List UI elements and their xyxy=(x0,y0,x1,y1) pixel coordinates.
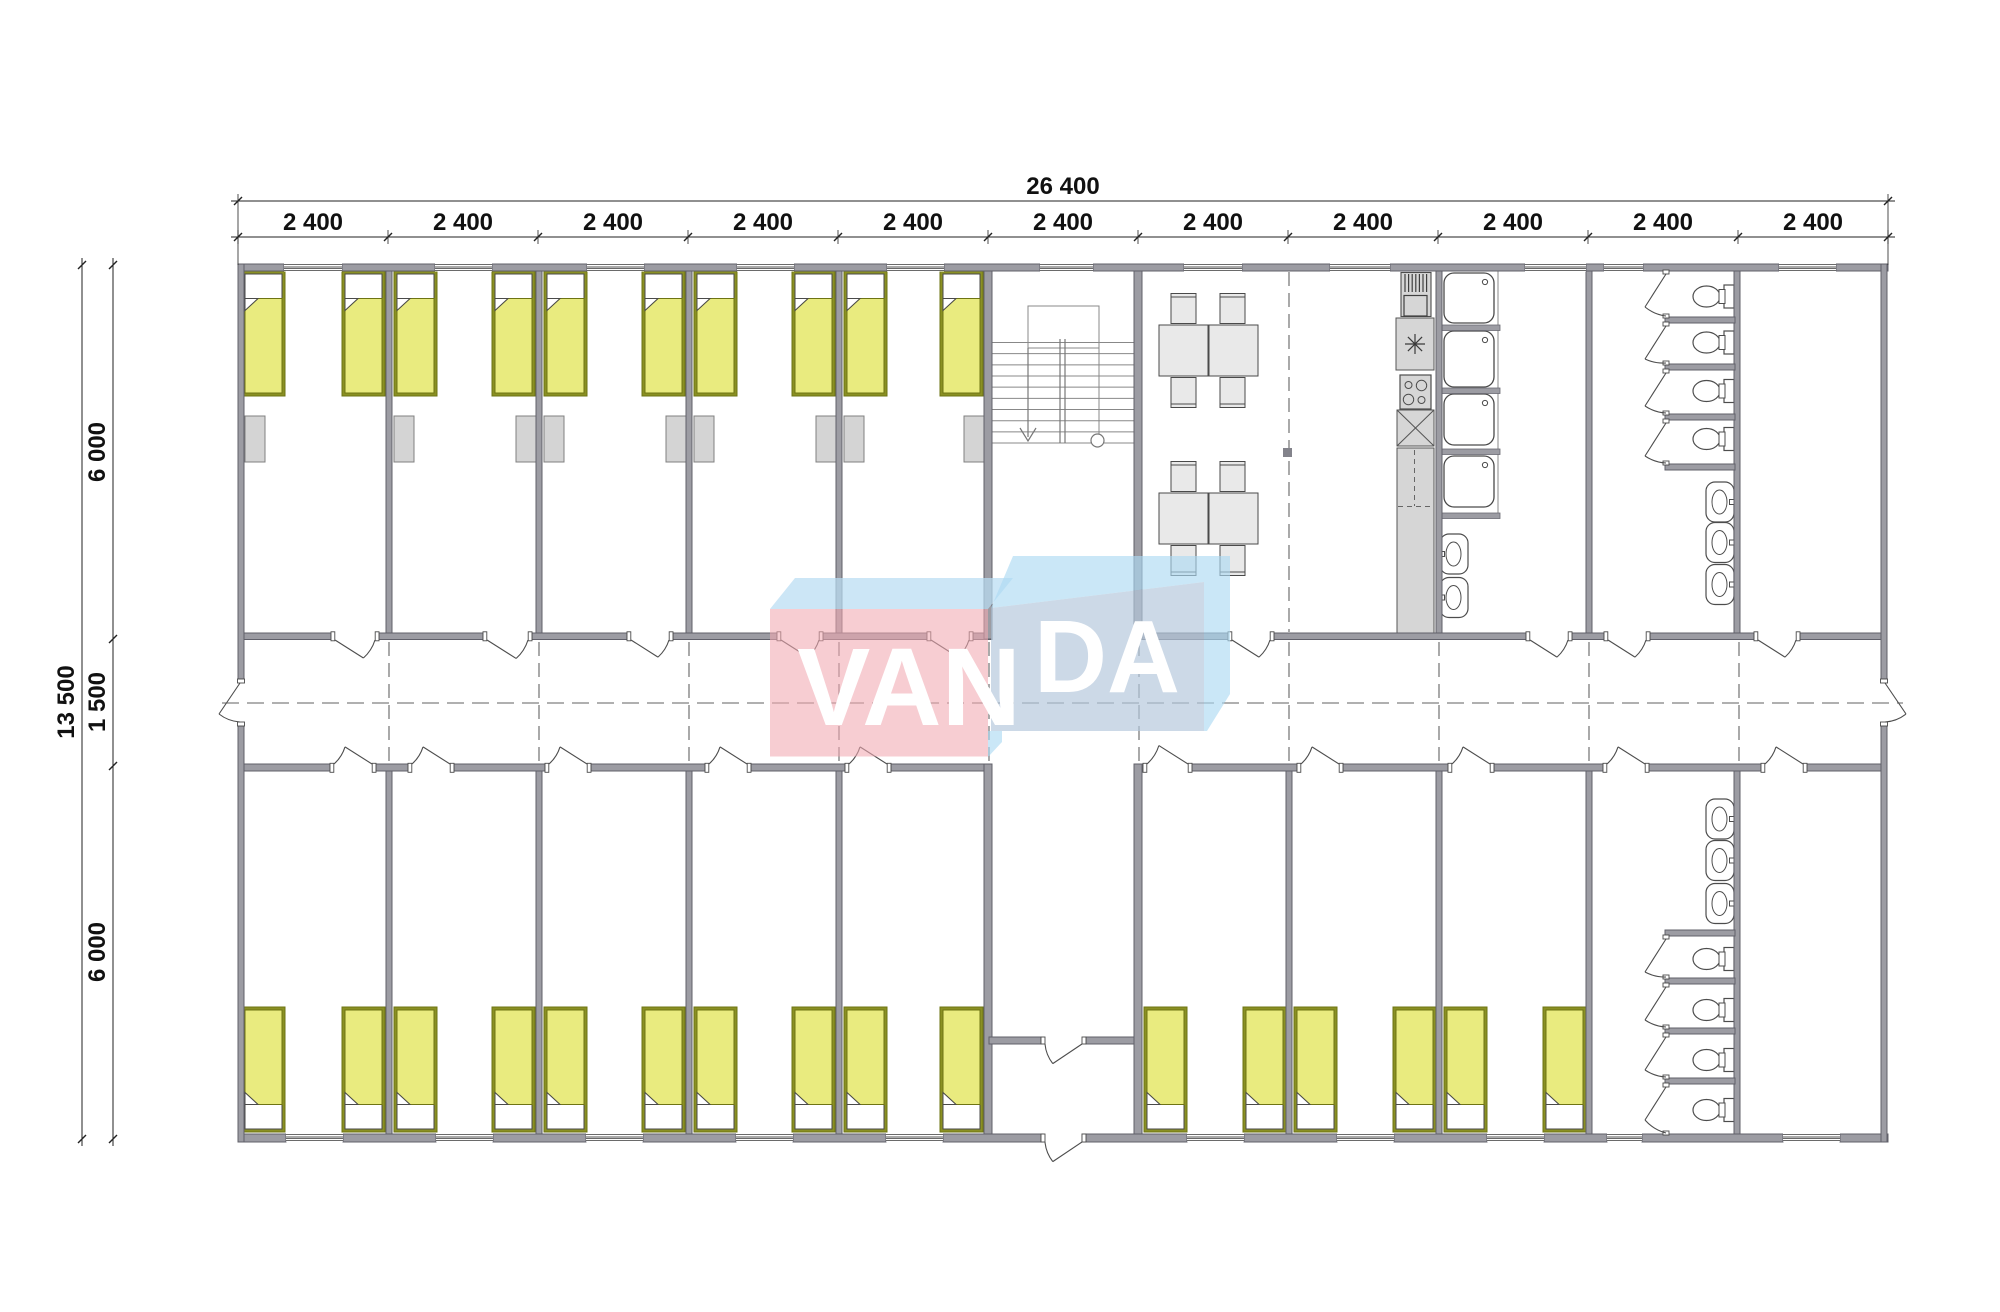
svg-text:2 400: 2 400 xyxy=(1483,209,1543,236)
svg-text:13 500: 13 500 xyxy=(53,665,80,738)
svg-text:2 400: 2 400 xyxy=(1333,209,1393,236)
svg-text:2 400: 2 400 xyxy=(433,209,493,236)
svg-text:6 000: 6 000 xyxy=(84,922,111,982)
svg-text:6 000: 6 000 xyxy=(84,422,111,482)
svg-text:2 400: 2 400 xyxy=(1633,209,1693,236)
svg-text:2 400: 2 400 xyxy=(733,209,793,236)
svg-text:26 400: 26 400 xyxy=(1026,173,1099,200)
svg-text:DA: DA xyxy=(1034,599,1180,714)
svg-text:2 400: 2 400 xyxy=(583,209,643,236)
svg-text:2 400: 2 400 xyxy=(1783,209,1843,236)
svg-text:2 400: 2 400 xyxy=(1033,209,1093,236)
svg-text:2 400: 2 400 xyxy=(883,209,943,236)
svg-text:1 500: 1 500 xyxy=(84,672,111,732)
svg-text:2 400: 2 400 xyxy=(1183,209,1243,236)
svg-text:VAN: VAN xyxy=(797,626,1021,749)
svg-text:2 400: 2 400 xyxy=(283,209,343,236)
